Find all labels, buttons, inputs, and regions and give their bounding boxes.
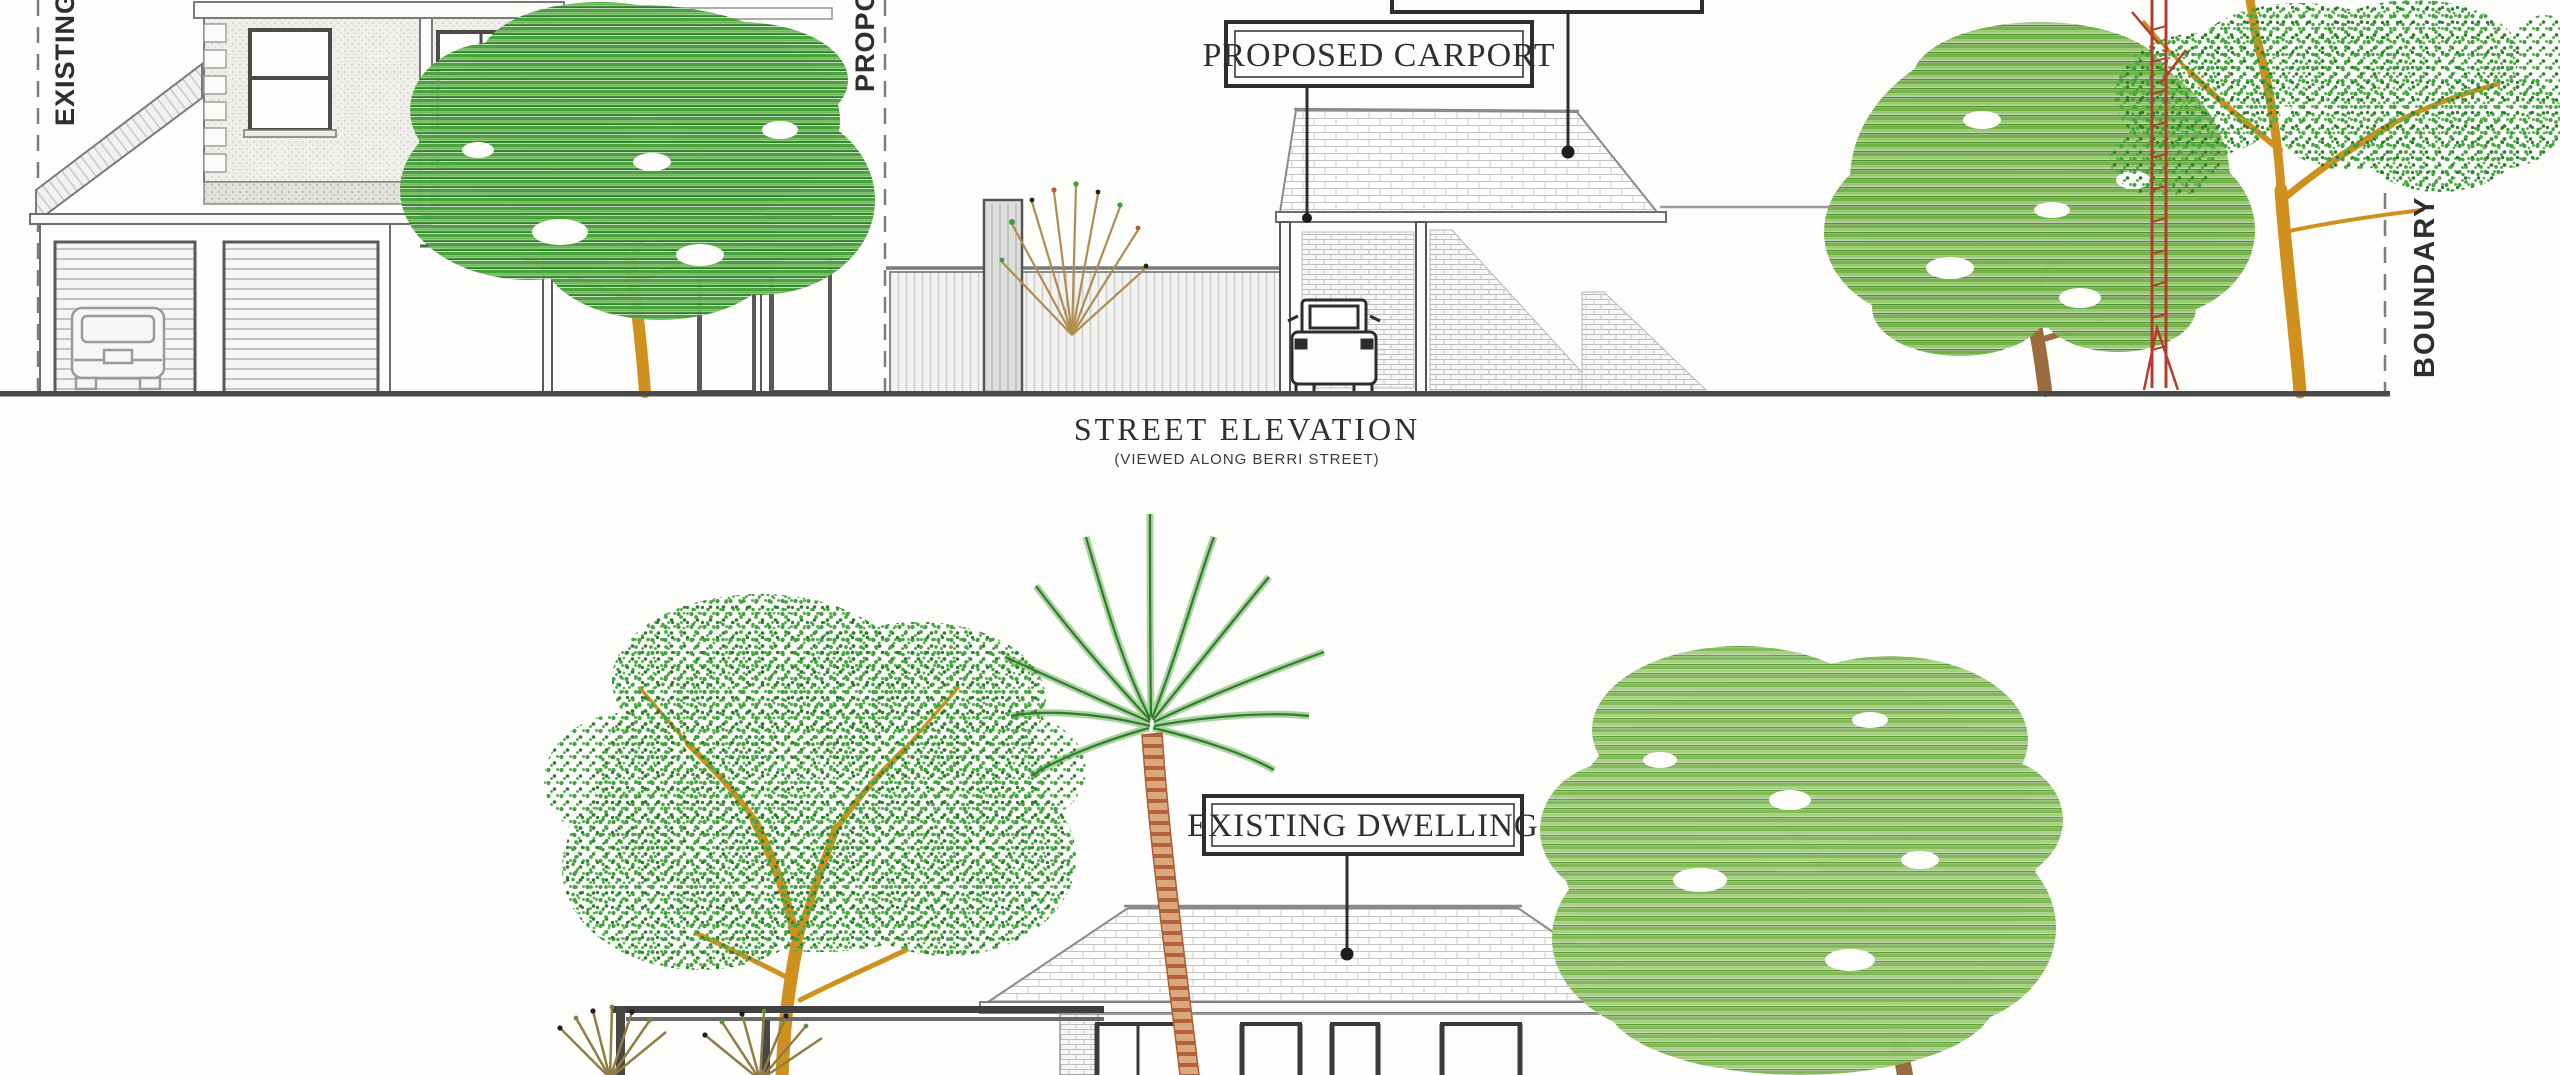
garage-eave — [30, 214, 430, 224]
fence — [890, 272, 1282, 392]
retaining-wedge-1 — [1430, 230, 1598, 390]
garage-door-right — [224, 242, 378, 393]
ground-line — [0, 391, 2390, 397]
boundary-vertical-label: BOUNDARY — [2409, 196, 2441, 378]
dwelling-windows — [1095, 1024, 1522, 1075]
fence-section — [886, 181, 1286, 392]
proposed-vertical-label: PROPOSED — [850, 0, 880, 92]
pergola — [612, 1006, 1104, 1075]
dwelling-label: EXISTING DWELLING — [1187, 808, 1539, 844]
carport-roof — [1280, 110, 1657, 212]
window-3 — [1330, 1024, 1380, 1075]
elevation-title: STREET ELEVATION — [1074, 411, 1420, 447]
window-1 — [1095, 1024, 1185, 1075]
carport-label: PROPOSED CARPORT — [1202, 37, 1555, 74]
upper-window — [244, 30, 336, 137]
carport-post-mid — [1416, 222, 1426, 392]
carport-post-left — [1280, 222, 1290, 392]
parapet — [194, 2, 564, 18]
retaining-wedge-2 — [1582, 292, 1706, 390]
tree-e-crown — [544, 594, 1086, 970]
window-2 — [1240, 1024, 1302, 1075]
existing-vertical-label: EXISTING — [50, 0, 80, 126]
clipped-label-box — [1392, 0, 1702, 12]
tree-f-crown — [1540, 646, 2063, 1075]
scanned-plan-page: PROPOSED CARPORT EXISTING PROPOSED BOUND… — [0, 0, 2560, 1075]
carport-eave — [1276, 212, 1666, 222]
window-4 — [1440, 1024, 1522, 1075]
tree-c-foliage — [2110, 0, 2560, 198]
ute-under-carport — [1288, 300, 1380, 393]
elevation-subtitle: (VIEWED ALONG BERRI STREET) — [1114, 451, 1379, 468]
elevation-drawing: PROPOSED CARPORT EXISTING PROPOSED BOUND… — [0, 0, 2560, 1075]
bottom-elevation: EXISTING DWELLING — [544, 514, 2063, 1075]
wall-corner-pier — [1060, 1014, 1098, 1075]
car-in-garage — [72, 308, 164, 389]
tree-bottom-right — [1540, 646, 2063, 1075]
top-elevation: PROPOSED CARPORT EXISTING PROPOSED BOUND… — [0, 0, 2560, 468]
